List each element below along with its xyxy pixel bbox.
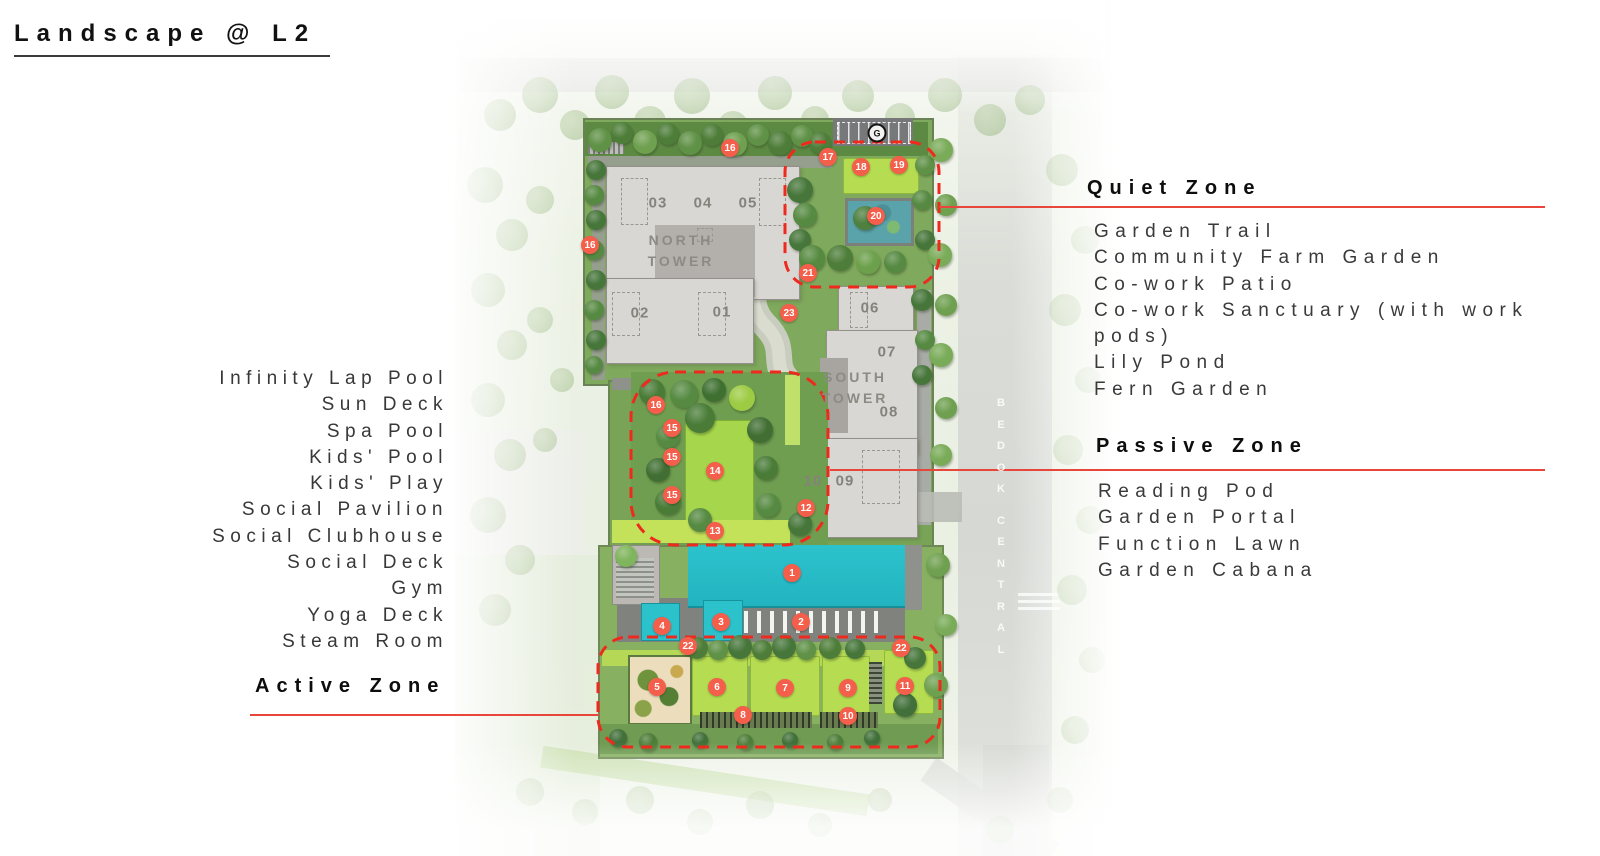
landscape-plan-slide: BEDOKCENTRAL 03040502010607081009 NORTH … [0, 0, 1600, 856]
map-marker-18: 18 [852, 158, 870, 176]
map-marker-22: 22 [892, 639, 910, 657]
map-marker-21: 21 [799, 264, 817, 282]
map-marker-23: 23 [780, 304, 798, 322]
amenity-item: Social Deck [150, 550, 448, 576]
passive-zone-heading: Passive Zone [1096, 435, 1308, 458]
map-marker-14: 14 [706, 462, 724, 480]
map-marker-8: 8 [734, 706, 752, 724]
amenity-item: Social Clubhouse [150, 524, 448, 550]
amenity-item: Gym [150, 576, 448, 602]
map-marker-15: 15 [663, 486, 681, 504]
map-marker-9: 9 [839, 679, 857, 697]
amenity-item: Garden Cabana [1098, 558, 1538, 584]
gate-marker: G [868, 124, 887, 143]
map-marker-11: 11 [896, 677, 914, 695]
amenity-item: Function Lawn [1098, 532, 1538, 558]
amenity-item: Infinity Lap Pool [150, 366, 448, 392]
amenity-item: Lily Pond [1094, 350, 1549, 376]
road-label-letter: K [997, 483, 1005, 495]
map-marker-1: 1 [783, 564, 801, 582]
road-label-letter: C [997, 515, 1005, 527]
passive-zone-amenities-list: Reading PodGarden PortalFunction LawnGar… [1098, 479, 1538, 584]
amenity-item: Reading Pod [1098, 479, 1538, 505]
unit-label-06: 06 [861, 300, 880, 317]
road-label-letter: D [997, 440, 1005, 452]
map-marker-4: 4 [653, 617, 671, 635]
map-marker-16: 16 [581, 236, 599, 254]
active-zone-amenities-list: Infinity Lap PoolSun DeckSpa PoolKids' P… [150, 366, 448, 655]
map-marker-12: 12 [797, 499, 815, 517]
map-marker-19: 19 [890, 156, 908, 174]
map-marker-5: 5 [648, 678, 666, 696]
map-marker-3: 3 [712, 613, 730, 631]
amenity-item: Garden Trail [1094, 219, 1549, 245]
map-marker-2: 2 [792, 613, 810, 631]
road-label-letter: E [997, 536, 1004, 548]
tower-label-north-tower: NORTH TOWER [648, 230, 715, 272]
map-marker-20: 20 [867, 207, 885, 225]
amenity-item: Kids' Play [150, 471, 448, 497]
map-marker-6: 6 [708, 678, 726, 696]
road-label-letter: E [997, 419, 1004, 431]
amenity-item: Co-work Sanctuary (with work pods) [1094, 298, 1549, 351]
amenity-item: Social Pavilion [150, 497, 448, 523]
map-marker-15: 15 [663, 419, 681, 437]
unit-label-10: 10 [804, 473, 823, 490]
road-label-letter: A [997, 622, 1005, 634]
amenity-item: Kids' Pool [150, 445, 448, 471]
amenity-item: Fern Garden [1094, 377, 1549, 403]
map-marker-13: 13 [706, 522, 724, 540]
amenity-item: Co-work Patio [1094, 272, 1549, 298]
unit-label-01: 01 [713, 304, 732, 321]
active-zone-heading: Active Zone [255, 675, 445, 698]
road-label-letter: L [998, 644, 1005, 656]
map-marker-10: 10 [839, 707, 857, 725]
map-marker-15: 15 [663, 448, 681, 466]
road-label-letter: N [997, 558, 1005, 570]
amenity-item: Steam Room [150, 629, 448, 655]
road-label-letter: R [997, 601, 1005, 613]
amenity-item: Sun Deck [150, 392, 448, 418]
amenity-item: Yoga Deck [150, 603, 448, 629]
amenity-item: Garden Portal [1098, 505, 1538, 531]
unit-label-09: 09 [836, 473, 855, 490]
map-marker-7: 7 [776, 679, 794, 697]
unit-label-05: 05 [739, 195, 758, 212]
amenity-item: Spa Pool [150, 419, 448, 445]
road-label-letter: B [997, 397, 1005, 409]
road-label-letter: T [998, 579, 1005, 591]
page-title: Landscape @ L2 [14, 20, 330, 57]
unit-label-07: 07 [878, 344, 897, 361]
map-marker-16: 16 [647, 396, 665, 414]
quiet-zone-amenities-list: Garden TrailCommunity Farm GardenCo-work… [1094, 219, 1549, 403]
unit-label-03: 03 [649, 195, 668, 212]
gate-label: G [873, 128, 880, 138]
map-marker-17: 17 [819, 148, 837, 166]
road-label-letter: O [997, 462, 1006, 474]
amenity-item: Community Farm Garden [1094, 245, 1549, 271]
quiet-zone-heading: Quiet Zone [1087, 177, 1261, 200]
tower-label-south-tower: SOUTH TOWER [822, 367, 889, 409]
map-marker-16: 16 [721, 139, 739, 157]
unit-label-02: 02 [631, 305, 650, 322]
map-marker-22: 22 [679, 637, 697, 655]
unit-label-04: 04 [694, 195, 713, 212]
